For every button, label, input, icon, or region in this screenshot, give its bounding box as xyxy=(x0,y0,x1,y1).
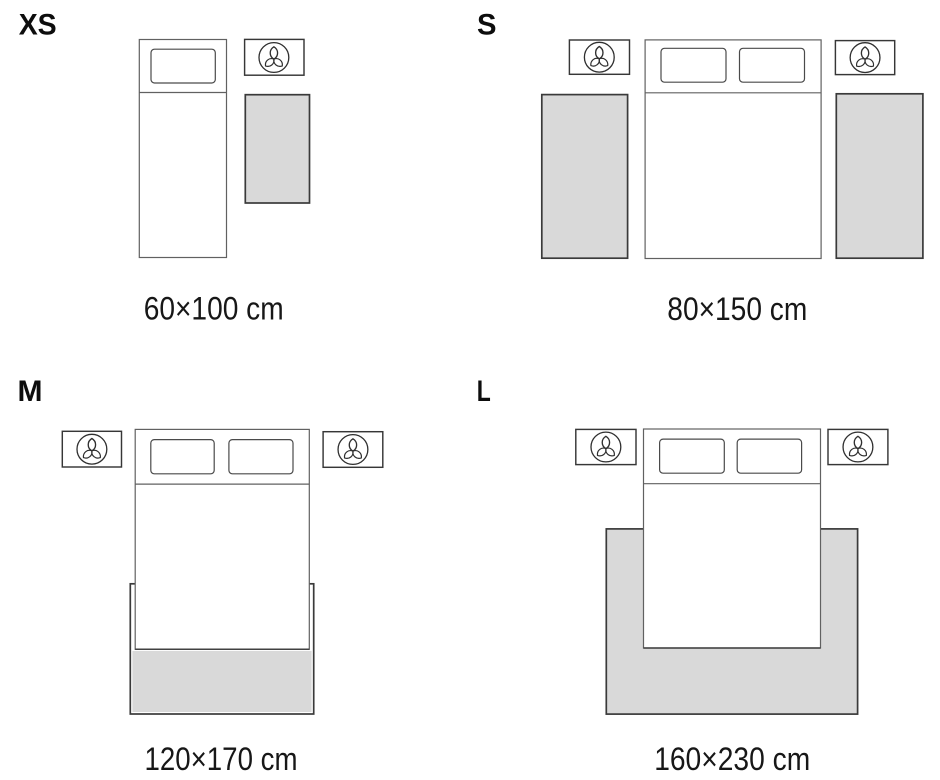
svg-text:M: M xyxy=(18,375,43,408)
svg-text:80×150 cm: 80×150 cm xyxy=(667,291,807,327)
svg-text:60×100 cm: 60×100 cm xyxy=(144,290,284,326)
svg-text:XS: XS xyxy=(19,9,57,42)
svg-text:160×230 cm: 160×230 cm xyxy=(654,741,810,777)
svg-text:S: S xyxy=(477,9,497,42)
svg-text:L: L xyxy=(477,375,491,408)
svg-text:120×170 cm: 120×170 cm xyxy=(145,741,298,777)
